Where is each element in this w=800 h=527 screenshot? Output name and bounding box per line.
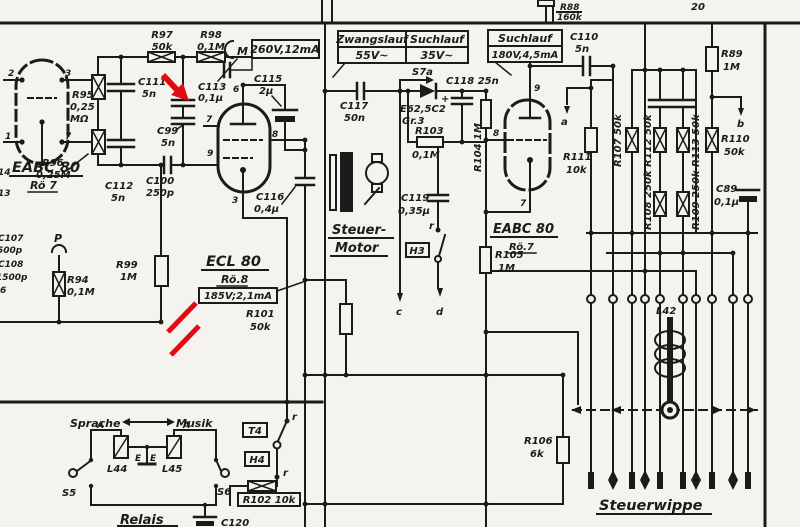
tube-left-pin-1: 1 xyxy=(5,132,11,142)
r88-value: 160k xyxy=(557,13,583,23)
r112-label: R112 50k xyxy=(643,113,654,167)
c89-name: C89 xyxy=(716,184,737,195)
arrow-c-label: c xyxy=(396,307,402,318)
edge-fragment-13: 13 xyxy=(0,189,11,199)
c117-name: C117 xyxy=(340,101,368,112)
tube-right-name: EABC 80 xyxy=(493,222,554,237)
c89-electrolytic-plate xyxy=(739,196,757,202)
suchlauf-box-header: Suchlauf xyxy=(498,32,553,45)
r101-value: 50k xyxy=(250,322,272,333)
r104-label: R104 1M xyxy=(473,123,484,172)
c113-name: C113 xyxy=(198,82,226,93)
r110-name: R110 xyxy=(721,134,750,145)
r97-name: R97 xyxy=(151,30,173,41)
c99-value: 5n xyxy=(161,138,175,149)
r108-label: R108 250k xyxy=(643,169,654,230)
red-slash-2 xyxy=(171,326,199,355)
s5-label: S5 xyxy=(62,488,76,499)
tube-mid-pin-9: 9 xyxy=(207,149,213,159)
r101-name: R101 xyxy=(246,309,275,320)
tube-mid-ref: Rö.8 xyxy=(221,273,249,286)
voltage-box-260: 260V,12mA xyxy=(250,40,319,58)
voltage-box-185-label: 185V;2,1mA xyxy=(204,291,272,302)
diode-name: E62,5C2 xyxy=(400,104,446,115)
edge-fragment-1500p: 1500p xyxy=(0,273,28,283)
c115-value: 2µ xyxy=(259,86,273,97)
c100-value: 250p xyxy=(146,188,174,199)
r98-value: 0,1M xyxy=(197,42,225,53)
tube-left-pin-2: 2 xyxy=(8,69,14,79)
resistors xyxy=(53,47,718,491)
r102-label: R102 10k xyxy=(243,495,297,506)
tube-left-pin-7: 7 xyxy=(65,132,72,142)
diode-e62 xyxy=(420,84,436,98)
mode-table-col2-header: Suchlauf xyxy=(410,33,465,46)
musik-label: Musik xyxy=(176,417,213,430)
edge-fragments: 14 13 C107 500p C108 1500p 6 xyxy=(0,168,28,296)
suchlauf-box-value: 180V,4,5mA xyxy=(492,50,559,61)
r97-value: 50k xyxy=(152,42,174,53)
r95-value: 0,25 xyxy=(70,102,95,113)
arrow-b-label: b xyxy=(737,119,744,130)
tube-mid-name: ECL 80 xyxy=(206,254,261,270)
r111-value: 10k xyxy=(566,165,588,176)
terminal-20-label: 20 xyxy=(691,2,705,13)
l44-label: L44 xyxy=(107,464,127,475)
indicator-h4: H4 xyxy=(249,455,264,466)
r103-name: R103 xyxy=(415,126,444,137)
r113-label: R113 50k xyxy=(691,113,702,167)
c116-value: 0,4µ xyxy=(254,204,279,215)
r105-name: R105 xyxy=(495,250,524,261)
arrow-a-label: a xyxy=(561,117,568,128)
mode-table-col1-value: 55V~ xyxy=(355,49,388,62)
edge-fragment-c107: C107 xyxy=(0,234,24,244)
indicator-t4: T4 xyxy=(248,426,262,437)
c100-name: C100 xyxy=(146,176,174,187)
mode-table-col2-value: 35V~ xyxy=(420,49,453,62)
r109-label: R109 250k xyxy=(691,169,702,230)
r105-value: 1M xyxy=(498,263,515,274)
relais-label: Relais xyxy=(120,513,164,527)
c111-name: C111 xyxy=(138,77,166,88)
c115-name: C115 xyxy=(254,74,282,85)
r88-stub xyxy=(538,0,554,6)
r99-name: R99 xyxy=(116,260,138,271)
tube-mid-pin-3: 3 xyxy=(232,196,238,206)
c112-name: C112 xyxy=(105,181,133,192)
arrow-d-label: d xyxy=(436,307,444,318)
e-left-label: E xyxy=(135,454,142,464)
r94-name: R94 xyxy=(67,275,89,286)
sprache-label: Sprache xyxy=(70,417,121,430)
p-label: P xyxy=(54,232,62,245)
tube-right-pin-8: 8 xyxy=(493,129,499,139)
r-lower-label: r xyxy=(283,468,289,479)
r89-value: 1M xyxy=(723,62,740,73)
diode-polarity: + xyxy=(441,94,449,105)
c118-label: C118 25n xyxy=(446,76,499,87)
r95-name: R95 xyxy=(72,90,94,101)
r107-label: R107 50k xyxy=(613,113,624,167)
tube-eabc80-right: 9 8 7 EABC 80 Rö.7 xyxy=(491,84,557,253)
c117-value: 50n xyxy=(344,113,365,124)
c113-value: 0,1µ xyxy=(198,93,223,104)
r89-name: R89 xyxy=(721,49,743,60)
c116-name: C116 xyxy=(256,192,284,203)
steuerwippe-label: Steuerwippe xyxy=(599,498,703,514)
s7a-label: S7a xyxy=(412,67,433,78)
c120-name: C120 xyxy=(221,518,249,527)
r111-name: R111 xyxy=(563,152,592,163)
red-slash-1 xyxy=(168,303,196,332)
indicator-h3: H3 xyxy=(409,246,424,257)
edge-fragment-6: 6 xyxy=(0,286,6,296)
c99-name: C99 xyxy=(157,126,178,137)
l42-label: L42 xyxy=(656,306,676,317)
c111-value: 5n xyxy=(142,89,156,100)
c119-name: C119 xyxy=(401,193,429,204)
mode-table-col1-header: Zwangslauf xyxy=(335,33,409,46)
tube-right-pin-9: 9 xyxy=(534,84,540,94)
r99-value: 1M xyxy=(120,272,137,283)
steuer-motor-symbol xyxy=(330,152,388,212)
steuer-motor-line2: Motor xyxy=(335,241,380,256)
r103-value: 0,1M xyxy=(412,150,440,161)
tube-right-pin-7: 7 xyxy=(520,199,527,209)
tube-mid-pin-6: 6 xyxy=(233,85,239,95)
tube-mid-pin-7: 7 xyxy=(206,115,213,125)
c119-value: 0,35µ xyxy=(398,206,430,217)
r110-value: 50k xyxy=(724,147,746,158)
c112-value: 5n xyxy=(111,193,125,204)
edge-fragment-14: 14 xyxy=(0,168,11,178)
r-upper-label: r xyxy=(292,412,298,423)
m-label: M xyxy=(237,45,248,58)
edge-fragment-500p: 500p xyxy=(0,246,23,256)
tube-left-pin-3: 3 xyxy=(65,69,71,79)
c89-value: 0,1µ xyxy=(714,197,739,208)
r106-value: 6k xyxy=(530,449,545,460)
r95-unit: MΩ xyxy=(70,114,89,125)
c115-electrolytic-plate xyxy=(275,116,295,122)
section-titles: Steuer- Motor Steuerwippe xyxy=(329,12,711,514)
voltage-box-260-label: 260V,12mA xyxy=(250,43,319,56)
c110-value: 5n xyxy=(575,44,589,55)
tube-mid-pin-8: 8 xyxy=(272,130,278,140)
edge-fragment-c108: C108 xyxy=(0,260,23,270)
r96-value: 0,25M xyxy=(36,170,71,181)
a-left-label: A xyxy=(96,421,104,431)
l45-label: L45 xyxy=(162,464,182,475)
c110-name: C110 xyxy=(570,32,598,43)
r98-name: R98 xyxy=(200,30,222,41)
suchlauf-box: Suchlauf 180V,4,5mA xyxy=(488,30,562,62)
r-mid-label: r xyxy=(429,221,435,232)
r96-name: R96 xyxy=(42,158,64,169)
r106-name: R106 xyxy=(524,436,553,447)
mode-table: Zwangslauf Suchlauf 55V~ 35V~ xyxy=(335,31,468,63)
e-right-label: E xyxy=(150,454,157,464)
steuer-motor-line1: Steuer- xyxy=(332,223,386,238)
c120-plate xyxy=(196,521,214,526)
s6-label: S6 xyxy=(217,487,231,498)
schematic-canvas: 2 3 1 7 EABC 80 Rö 7 6 7 9 8 3 ECL 80 Rö… xyxy=(0,0,800,527)
r94-value: 0,1M xyxy=(67,287,95,298)
a-right-label: A xyxy=(182,421,190,431)
